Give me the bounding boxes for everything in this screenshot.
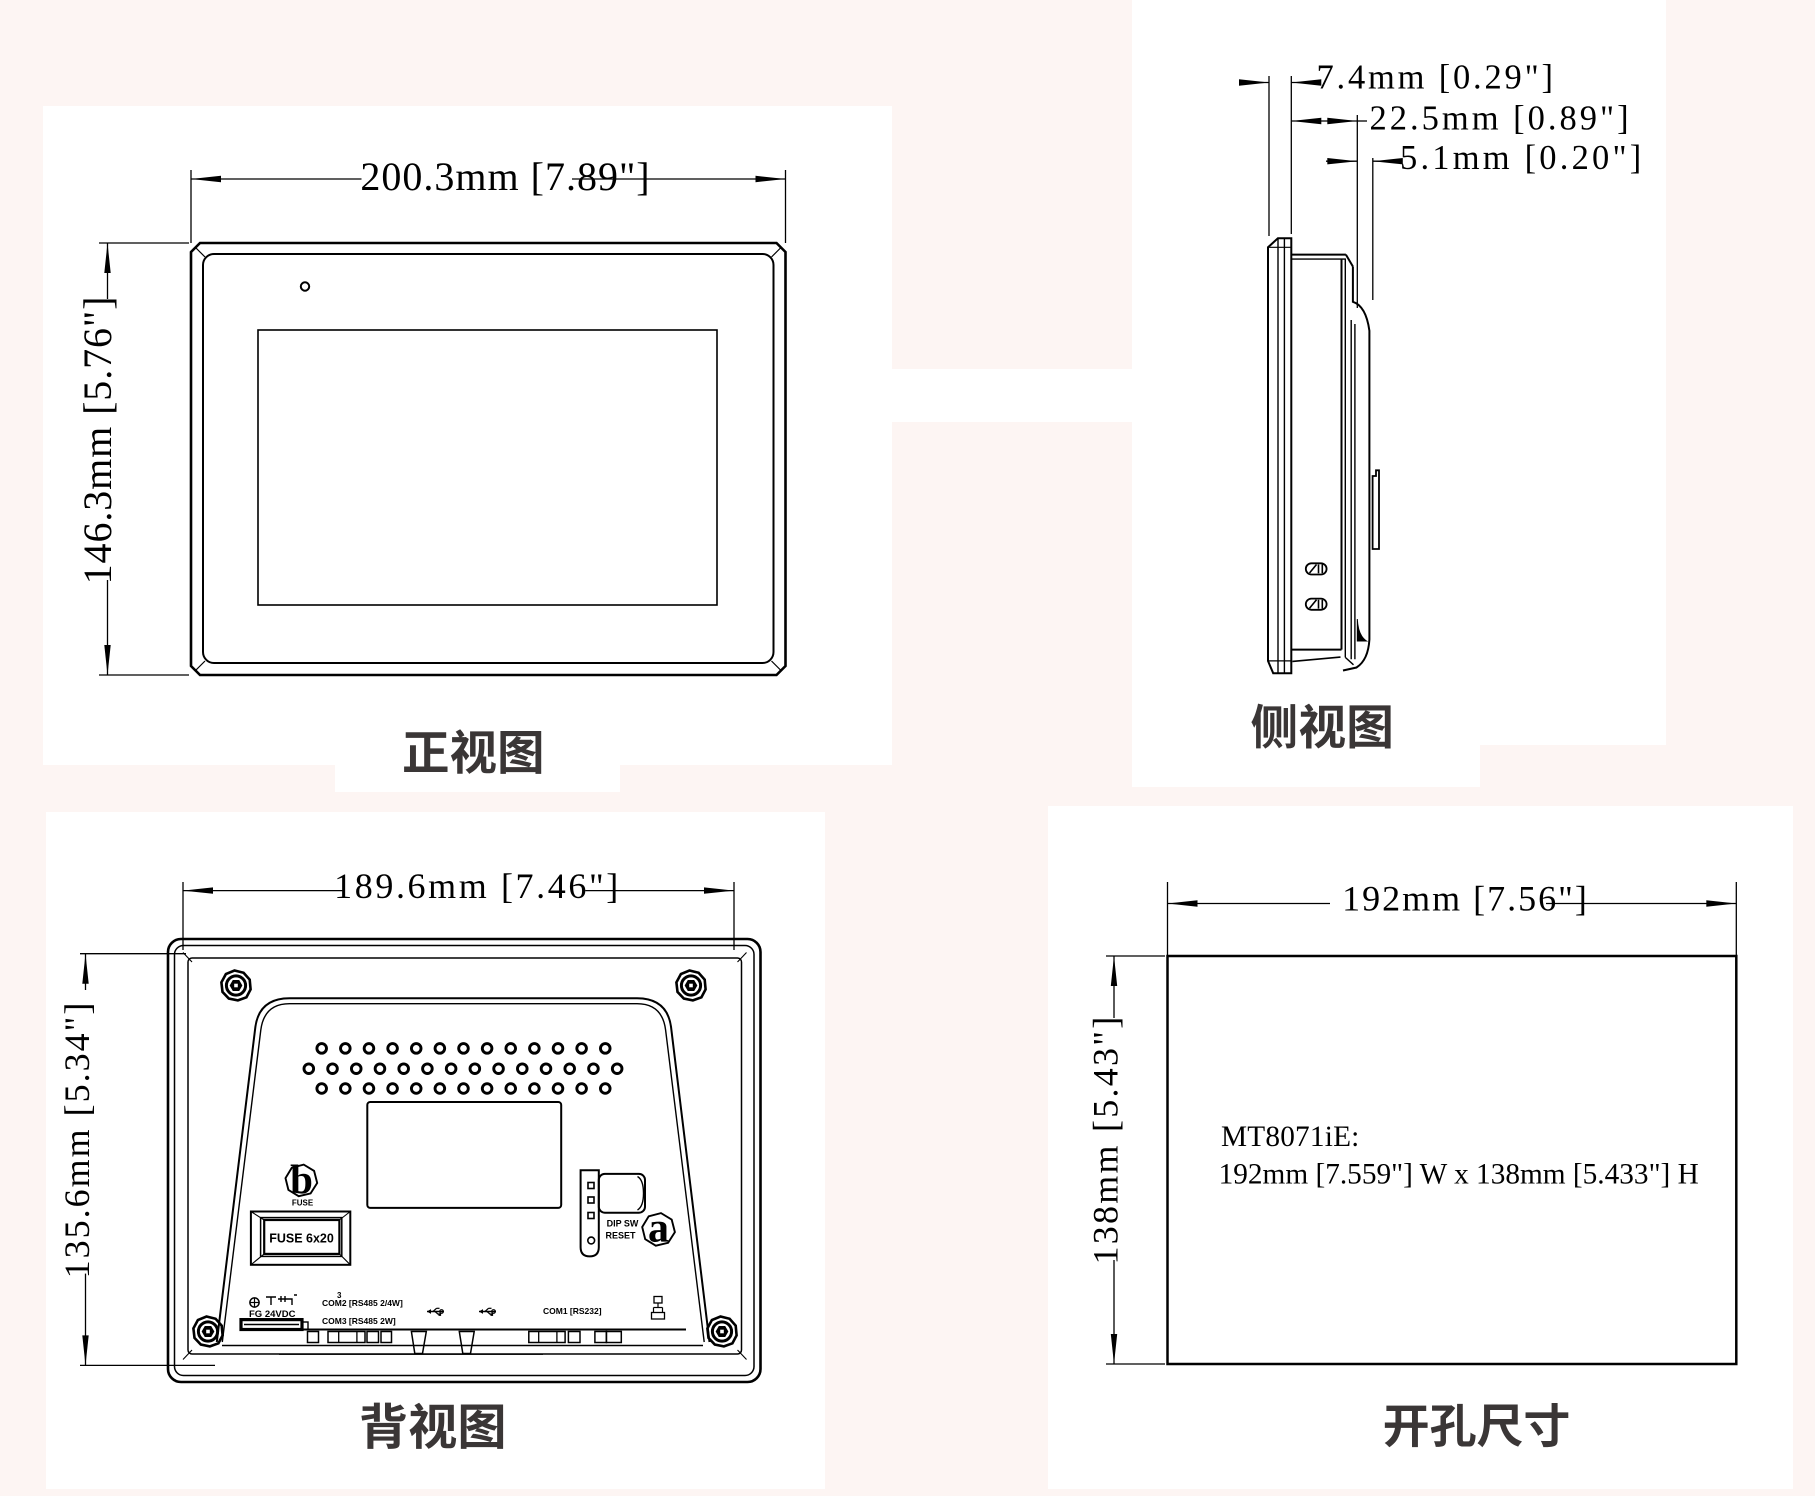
svg-text:COM1 [RS232]: COM1 [RS232] bbox=[543, 1306, 602, 1316]
svg-text:DIP SW: DIP SW bbox=[607, 1219, 639, 1229]
svg-text:3: 3 bbox=[337, 1291, 342, 1300]
svg-text:7.4mm [0.29"]: 7.4mm [0.29"] bbox=[1317, 58, 1556, 96]
svg-text:189.6mm [7.46"]: 189.6mm [7.46"] bbox=[334, 866, 621, 906]
svg-text:FUSE 6x20: FUSE 6x20 bbox=[269, 1232, 334, 1246]
svg-text:200.3mm [7.89"]: 200.3mm [7.89"] bbox=[360, 154, 650, 199]
svg-text:192mm [7.559"] W x 138mm [5.43: 192mm [7.559"] W x 138mm [5.433"] H bbox=[1219, 1159, 1699, 1191]
svg-text:COM3 [RS485 2W]: COM3 [RS485 2W] bbox=[322, 1316, 396, 1326]
svg-text:192mm [7.56"]: 192mm [7.56"] bbox=[1342, 879, 1589, 919]
svg-text:5.1mm [0.20"]: 5.1mm [0.20"] bbox=[1400, 139, 1644, 177]
svg-text:138mm [5.43"]: 138mm [5.43"] bbox=[1086, 1015, 1126, 1265]
svg-text:135.6mm [5.34"]: 135.6mm [5.34"] bbox=[57, 1001, 97, 1279]
svg-text:22.5mm [0.89"]: 22.5mm [0.89"] bbox=[1370, 100, 1632, 138]
svg-text:FUSE: FUSE bbox=[292, 1199, 314, 1208]
svg-text:b: b bbox=[290, 1156, 313, 1202]
svg-text:MT8071iE:: MT8071iE: bbox=[1221, 1121, 1360, 1153]
svg-text:a: a bbox=[648, 1206, 669, 1252]
svg-text:146.3mm [5.76"]: 146.3mm [5.76"] bbox=[75, 296, 120, 585]
svg-text:COM2 [RS485 2/4W]: COM2 [RS485 2/4W] bbox=[322, 1298, 403, 1308]
svg-text:RESET: RESET bbox=[605, 1231, 636, 1241]
